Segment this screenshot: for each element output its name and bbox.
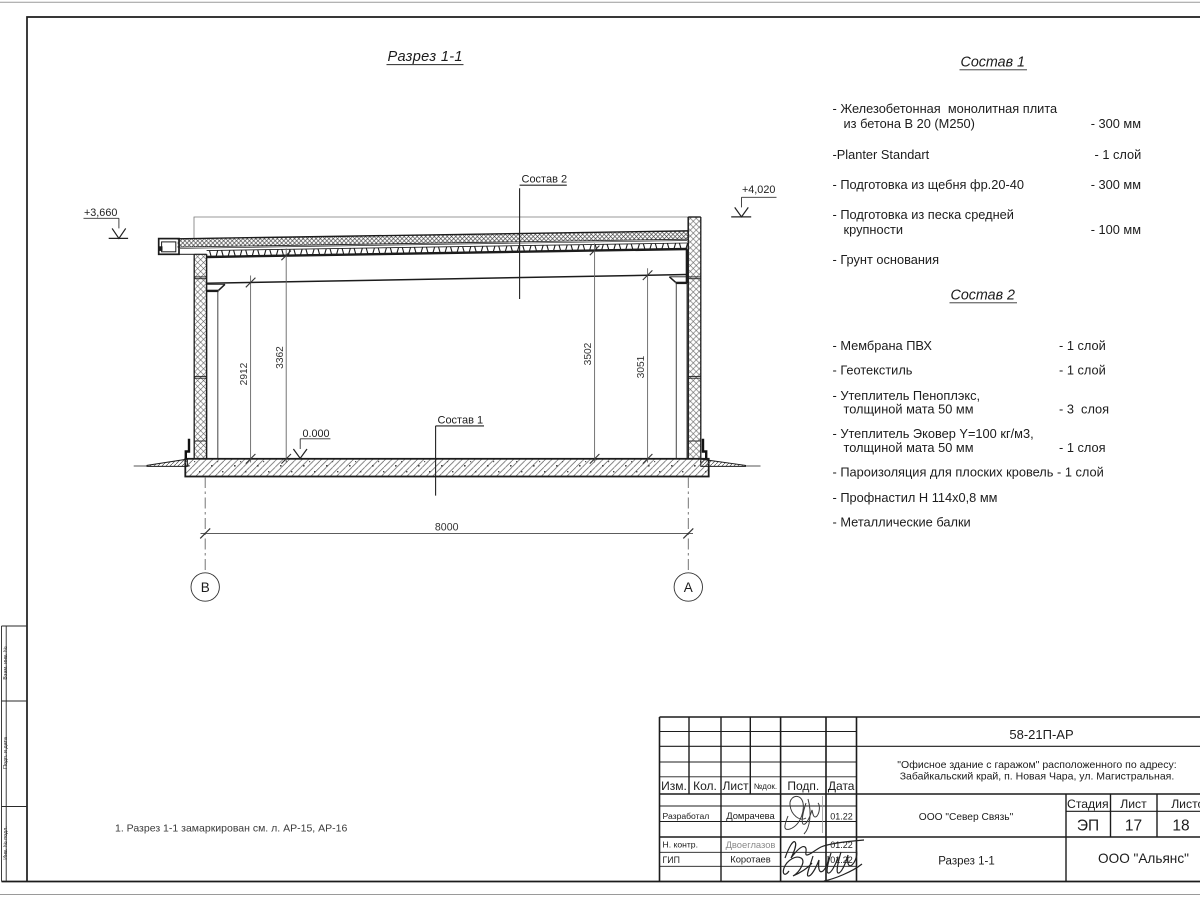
svg-text:01.22: 01.22 [830,811,853,821]
svg-text:- Пароизоляция для плоских кро: - Пароизоляция для плоских кровель [833,465,1054,480]
svg-text:Стадия: Стадия [1067,797,1109,811]
svg-text:ООО "Север Связь": ООО "Север Связь" [919,812,1014,823]
svg-text:3362: 3362 [275,346,286,369]
svg-text:Домрачева: Домрачева [726,810,775,821]
svg-text:Состав 1: Состав 1 [438,414,484,426]
svg-text:Инв. № подл.: Инв. № подл. [3,826,9,860]
svg-text:- 1 слоя: - 1 слоя [1059,440,1106,455]
svg-text:А: А [684,580,693,595]
svg-text:0.000: 0.000 [303,428,330,440]
svg-text:- Мембрана ПВХ: - Мембрана ПВХ [833,338,933,353]
svg-text:58-21П-АР: 58-21П-АР [1009,727,1073,742]
svg-text:+4,020: +4,020 [742,184,775,196]
svg-text:- Геотекстиль: - Геотекстиль [833,363,913,378]
svg-text:- Грунт основания: - Грунт основания [833,252,940,267]
svg-text:В: В [201,580,210,595]
svg-text:ГИП: ГИП [663,855,680,865]
svg-text:- 1 слой: - 1 слой [1057,465,1104,480]
svg-text:Лист: Лист [723,779,750,793]
svg-text:"Офисное здание с гаражом" рас: "Офисное здание с гаражом" расположенног… [897,759,1176,771]
svg-text:Дата: Дата [828,779,855,793]
svg-text:Разрез 1-1: Разрез 1-1 [938,855,994,867]
svg-text:- 1 слой: - 1 слой [1095,147,1142,162]
svg-text:толщиной мата 50 мм: толщиной мата 50 мм [844,440,974,455]
svg-text:Подп. и дата: Подп. и дата [3,737,9,769]
svg-text:Состав 2: Состав 2 [522,173,568,185]
svg-text:- 300 мм: - 300 мм [1091,116,1141,131]
svg-text:- Металлические балки: - Металлические балки [833,515,971,530]
svg-text:18: 18 [1172,818,1189,835]
svg-text:- 100 мм: - 100 мм [1091,222,1141,237]
svg-text:- 1 слой: - 1 слой [1059,338,1106,353]
svg-text:- Железобетонная монолитная п: - Железобетонная монолитная плита [833,101,1059,116]
svg-text:- Утеплитель Эковер Y=100 кг/м: - Утеплитель Эковер Y=100 кг/м3, [833,426,1034,441]
svg-text:- Подготовка из щебня фр.20-40: - Подготовка из щебня фр.20-40 [833,177,1024,192]
svg-text:2912: 2912 [239,362,250,385]
svg-text:крупности: крупности [844,222,904,237]
svg-text:Подп.: Подп. [787,779,819,793]
svg-text:Кол.: Кол. [693,779,717,793]
svg-text:+3,660: +3,660 [84,207,117,219]
svg-text:из бетона В 20 (М250): из бетона В 20 (М250) [844,116,975,131]
svg-text:- 1 слой: - 1 слой [1059,363,1106,378]
svg-text:3051: 3051 [636,355,647,378]
svg-text:Двоеглазов: Двоеглазов [726,839,776,850]
svg-text:8000: 8000 [435,521,459,533]
svg-text:17: 17 [1125,818,1142,835]
svg-text:Н. контр.: Н. контр. [663,840,698,850]
svg-text:01.22: 01.22 [830,855,853,865]
svg-text:Изм.: Изм. [661,779,687,793]
svg-text:1. Разрез 1-1 замаркирован см.: 1. Разрез 1-1 замаркирован см. л. АР-15,… [115,823,347,835]
svg-text:Разрез 1-1: Разрез 1-1 [388,49,463,65]
svg-text:Разработал: Разработал [663,811,710,821]
svg-text:Состав 2: Состав 2 [951,287,1016,303]
svg-text:Листов: Листов [1171,797,1200,811]
svg-text:- Подготовка из песка средней: - Подготовка из песка средней [833,207,1014,222]
svg-text:-Planter Standart: -Planter Standart [833,147,930,162]
svg-text:- 3 слоя: - 3 слоя [1059,402,1109,417]
svg-text:3502: 3502 [583,342,594,365]
svg-text:ЭП: ЭП [1077,818,1099,835]
svg-text:ООО "Альянс": ООО "Альянс" [1098,851,1189,866]
svg-text:№док.: №док. [754,782,777,791]
svg-text:Лист: Лист [1120,797,1147,811]
svg-text:Забайкальский край, п. Новая Ч: Забайкальский край, п. Новая Чара, ул. М… [900,771,1175,783]
svg-text:- Профнастил Н 114х0,8 мм: - Профнастил Н 114х0,8 мм [833,490,998,505]
svg-text:Коротаев: Коротаев [730,854,771,865]
svg-text:- 300 мм: - 300 мм [1091,177,1141,192]
svg-text:Взам. инв. №: Взам. инв. № [3,646,9,680]
svg-text:толщиной мата 50 мм: толщиной мата 50 мм [844,402,974,417]
svg-text:Состав 1: Состав 1 [961,54,1026,70]
